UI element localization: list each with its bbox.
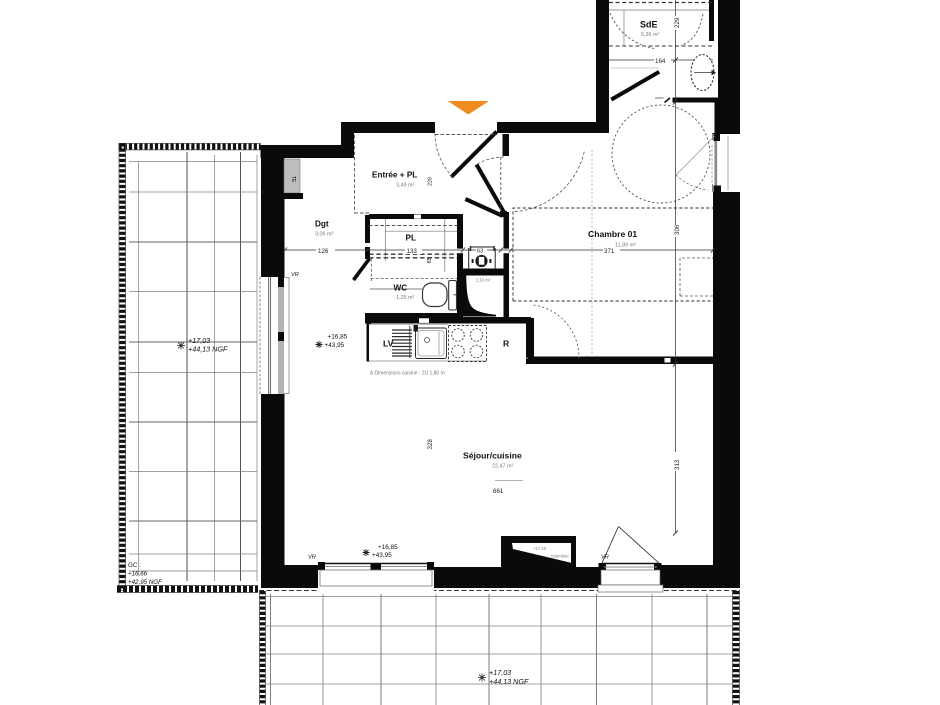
svg-text:+16,85: +16,85 — [378, 544, 398, 551]
svg-text:VR: VR — [291, 272, 299, 278]
svg-text:+43,95: +43,95 — [372, 552, 392, 559]
svg-text:11,89 m²: 11,89 m² — [615, 243, 636, 249]
svg-text:Entrée + PL: Entrée + PL — [372, 171, 417, 180]
svg-text:228: 228 — [428, 177, 434, 186]
svg-text:5,36 m²: 5,36 m² — [641, 32, 659, 38]
svg-text:R: R — [503, 339, 510, 349]
svg-text:+44,13 NGF: +44,13 NGF — [188, 345, 228, 354]
svg-text:SdE: SdE — [640, 20, 658, 30]
svg-text:661: 661 — [493, 488, 504, 495]
svg-text:+44,13 NGF: +44,13 NGF — [489, 677, 529, 686]
svg-text:126: 126 — [318, 248, 329, 255]
svg-text:+16,85: +16,85 — [328, 334, 348, 341]
svg-text:TE: TE — [290, 176, 296, 183]
svg-text:+43,95: +43,95 — [325, 342, 345, 349]
svg-text:3,06 m²: 3,06 m² — [315, 232, 333, 238]
svg-text:+42,95 NGF: +42,95 NGF — [128, 579, 163, 586]
svg-text:22,47 m²: 22,47 m² — [492, 464, 513, 470]
svg-text:PL: PL — [406, 234, 416, 243]
svg-text:133: 133 — [407, 248, 418, 255]
svg-text:1,25 m²: 1,25 m² — [396, 295, 414, 301]
svg-text:+17,03: +17,03 — [489, 668, 511, 677]
svg-text:229: 229 — [674, 17, 681, 28]
svg-text:85: 85 — [427, 257, 433, 263]
svg-text:VR: VR — [308, 555, 316, 561]
svg-text:WC: WC — [394, 284, 408, 293]
svg-text:Séjour/cuisine: Séjour/cuisine — [463, 451, 522, 461]
svg-text:+16,66: +16,66 — [128, 571, 148, 578]
svg-text:328: 328 — [427, 439, 434, 450]
svg-text:retombée: retombée — [551, 554, 569, 559]
svg-text:Chambre 01: Chambre 01 — [588, 229, 637, 239]
svg-text:1,10 m²: 1,10 m² — [476, 278, 491, 283]
svg-text:371: 371 — [604, 248, 615, 255]
svg-text:A Dimensions cuisine : 2U 1,: A Dimensions cuisine : 2U 1,80 m — [370, 371, 445, 377]
svg-text:63: 63 — [477, 249, 483, 255]
svg-text:LV: LV — [383, 339, 394, 349]
svg-text:3,49 m²: 3,49 m² — [396, 183, 414, 189]
svg-text:Dgt: Dgt — [315, 220, 329, 229]
svg-text:GC :: GC : — [128, 562, 141, 569]
svg-text:+17,15: +17,15 — [533, 546, 547, 551]
svg-text:164: 164 — [655, 58, 666, 65]
svg-text:VR: VR — [601, 555, 609, 561]
svg-text:306: 306 — [674, 224, 681, 235]
svg-text:313: 313 — [674, 459, 681, 470]
